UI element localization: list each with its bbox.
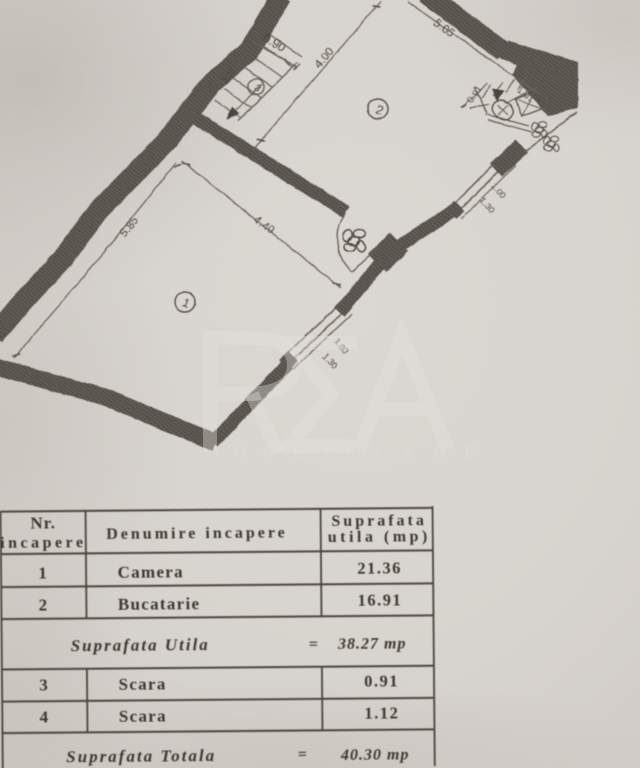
svg-text:I: I [376, 444, 380, 461]
svg-text:16.91: 16.91 [357, 590, 402, 609]
svg-text:4: 4 [40, 707, 51, 726]
svg-text:utila (mp): utila (mp) [328, 528, 431, 546]
svg-text:Suprafata Utila: Suprafata Utila [71, 635, 210, 655]
svg-text:Suprafata Totala: Suprafata Totala [66, 746, 216, 766]
svg-text:1: 1 [38, 563, 49, 582]
svg-text:1.12: 1.12 [364, 703, 399, 722]
svg-text:Scara: Scara [118, 674, 166, 693]
svg-text:E: E [465, 444, 476, 461]
svg-text:2: 2 [39, 595, 50, 614]
svg-text:=: = [298, 746, 309, 763]
svg-text:Nr.: Nr. [30, 513, 56, 532]
svg-text:Scara: Scara [119, 706, 167, 725]
svg-text:O: O [263, 444, 275, 461]
svg-text:40.30 mp: 40.30 mp [340, 746, 410, 764]
svg-text:Bucatarie: Bucatarie [118, 594, 201, 614]
svg-text:M: M [233, 444, 246, 461]
svg-text:0.91: 0.91 [364, 671, 399, 690]
svg-text:R: R [434, 444, 446, 461]
svg-text:=: = [309, 636, 320, 653]
svg-text:L: L [347, 444, 356, 461]
svg-text:incapere: incapere [0, 534, 87, 552]
svg-text:3: 3 [39, 675, 50, 694]
svg-text:I: I [324, 444, 328, 461]
svg-text:Camera: Camera [117, 562, 184, 582]
svg-text:38.27 mp: 38.27 mp [337, 635, 407, 653]
svg-text:A: A [403, 444, 414, 461]
svg-text:I: I [215, 444, 219, 461]
svg-text:B: B [294, 444, 305, 461]
svg-text:21.36: 21.36 [357, 558, 402, 577]
svg-text:Denumire incapere: Denumire incapere [106, 524, 288, 543]
